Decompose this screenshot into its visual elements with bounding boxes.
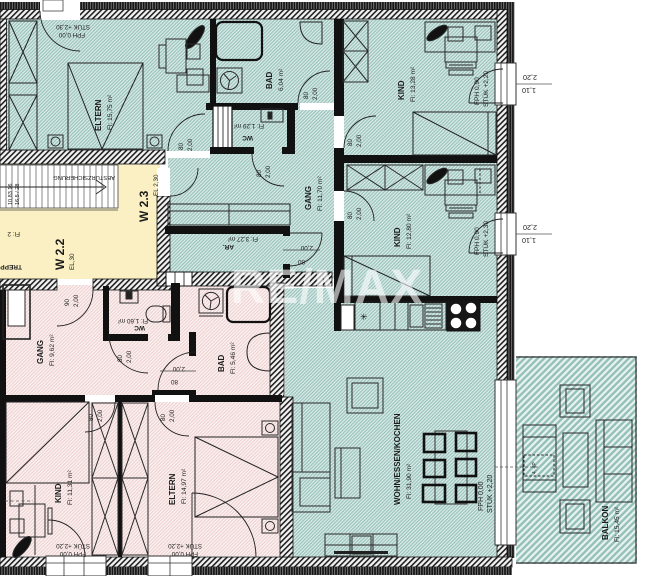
svg-text:Fl: 15,75 m²: Fl: 15,75 m² (107, 94, 114, 130)
svg-text:Fl: 1,29 m²: Fl: 1,29 m² (234, 122, 264, 129)
svg-text:KIND: KIND (54, 483, 63, 503)
svg-text:2,00: 2,00 (356, 207, 363, 220)
svg-text:Fl: 11,31 m²: Fl: 11,31 m² (67, 470, 74, 505)
svg-text:80: 80 (117, 354, 124, 362)
svg-text:80: 80 (347, 138, 354, 146)
svg-text:STÜK +2,20: STÜK +2,20 (486, 475, 494, 513)
svg-text:WOHN/ESSEN/KOCHEN: WOHN/ESSEN/KOCHEN (393, 413, 402, 505)
svg-text:FPH 0,90: FPH 0,90 (474, 227, 481, 255)
svg-text:Fl: 31,90 m²: Fl: 31,90 m² (406, 463, 413, 499)
svg-text:BALKON: BALKON (601, 506, 610, 540)
svg-text:Fl: 3,27 m²: Fl: 3,27 m² (228, 235, 258, 242)
svg-text:GANG: GANG (36, 340, 45, 364)
svg-text:80: 80 (88, 413, 95, 421)
svg-text:1,10: 1,10 (522, 86, 536, 95)
svg-text:2,00: 2,00 (265, 165, 272, 178)
svg-text:ABSTURZSICHERUNG: ABSTURZSICHERUNG (53, 174, 115, 180)
svg-text:FPH 0,00: FPH 0,00 (171, 550, 198, 557)
svg-text:STÜK +2,30: STÜK +2,30 (56, 23, 90, 30)
svg-text:16,5 / 28: 16,5 / 28 (15, 184, 21, 205)
svg-text:FPH 0,00: FPH 0,00 (58, 31, 85, 38)
svg-text:FPH 0,00: FPH 0,00 (59, 550, 86, 557)
svg-text:EL,30: EL,30 (69, 253, 76, 270)
svg-text:2,00: 2,00 (169, 409, 176, 422)
svg-text:80: 80 (170, 378, 178, 385)
svg-text:2,00: 2,00 (356, 134, 363, 147)
svg-text:2,00: 2,00 (312, 87, 319, 100)
svg-text:Fl: 13,28 m²: Fl: 13,28 m² (410, 66, 417, 102)
svg-text:KIND: KIND (397, 80, 406, 100)
svg-text:STÜK +2,20: STÜK +2,20 (482, 71, 490, 107)
svg-text:TREPPENH: TREPPENH (0, 263, 22, 270)
svg-text:Fl: 1,60 m²: Fl: 1,60 m² (118, 317, 148, 324)
svg-text:STÜK +2,20: STÜK +2,20 (168, 542, 202, 549)
svg-text:2,00: 2,00 (126, 350, 133, 363)
svg-text:10,83 16: 10,83 16 (8, 184, 14, 205)
svg-text:2,20: 2,20 (523, 223, 537, 232)
svg-text:Fl: 5,46 m²: Fl: 5,46 m² (230, 342, 237, 374)
svg-text:Fl: 15,45 m²: Fl: 15,45 m² (614, 506, 621, 542)
svg-text:Fl: 12,80 m²: Fl: 12,80 m² (406, 213, 413, 249)
svg-text:80: 80 (256, 169, 263, 177)
svg-text:STÜK +2,30: STÜK +2,30 (482, 221, 490, 257)
svg-text:BAD: BAD (217, 354, 226, 372)
svg-text:80: 80 (347, 211, 354, 219)
svg-text:Fl: 11,70 m²: Fl: 11,70 m² (317, 176, 324, 211)
svg-text:Fl: 2: Fl: 2 (7, 230, 20, 237)
svg-text:W 2.2: W 2.2 (53, 238, 67, 270)
svg-text:6,04 m²: 6,04 m² (278, 68, 285, 91)
svg-text:Fl: 9,62 m²: Fl: 9,62 m² (49, 334, 56, 366)
svg-text:1,10: 1,10 (522, 236, 536, 245)
svg-text:BAD: BAD (265, 71, 274, 89)
svg-text:Fl: 14,97 m²: Fl: 14,97 m² (181, 468, 188, 504)
svg-text:2,00: 2,00 (73, 294, 80, 307)
svg-text:2,00: 2,00 (187, 138, 194, 151)
svg-text:KIND: KIND (393, 227, 402, 247)
svg-text:2,00: 2,00 (97, 409, 104, 422)
svg-text:80: 80 (160, 413, 167, 421)
svg-text:80: 80 (303, 91, 310, 99)
svg-text:WC: WC (134, 324, 145, 331)
svg-text:80: 80 (178, 142, 185, 150)
svg-text:ELTERN: ELTERN (94, 99, 103, 131)
svg-text:W 2.3: W 2.3 (137, 190, 151, 222)
svg-text:EL 2,30: EL 2,30 (153, 174, 160, 196)
svg-text:WC: WC (242, 134, 253, 141)
svg-text:4, 4P: 4, 4P (532, 462, 538, 474)
svg-text:STÜK +2,20: STÜK +2,20 (56, 542, 90, 549)
svg-text:RE/MAX: RE/MAX (231, 261, 424, 314)
svg-text:GANG: GANG (304, 186, 313, 210)
svg-text:2,20: 2,20 (523, 73, 537, 82)
svg-text:90: 90 (64, 298, 71, 306)
svg-text:FPH 0,00: FPH 0,00 (478, 481, 485, 511)
svg-text:FPH 0,90: FPH 0,90 (474, 77, 481, 105)
svg-text:AR.: AR. (223, 243, 234, 250)
svg-text:ELTERN: ELTERN (168, 473, 177, 505)
